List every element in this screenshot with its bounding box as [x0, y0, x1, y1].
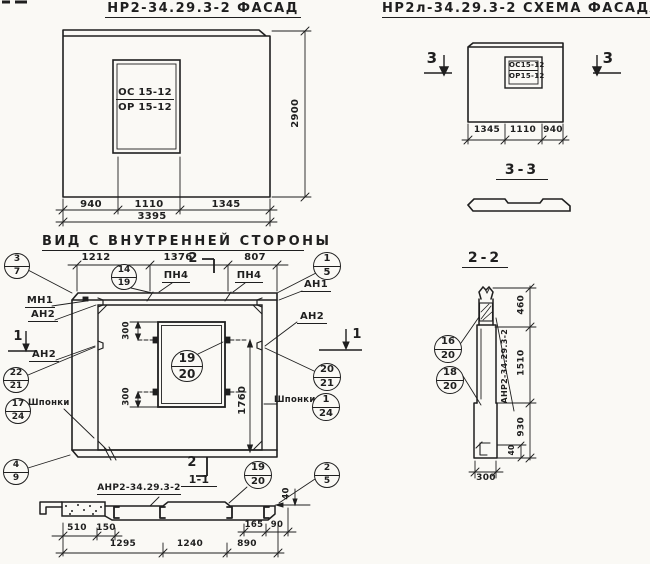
inner-dim-1760: 1760	[238, 383, 249, 417]
callout-3-7: 37	[4, 253, 30, 279]
callout-14-19-top: 14	[112, 265, 136, 278]
callout-18-20: 1820	[436, 366, 464, 394]
callout-16-20-bottom: 20	[435, 350, 461, 363]
inner-dim-807: 807	[237, 253, 273, 264]
callout-1-24-bottom: 24	[313, 408, 339, 421]
callout-19-20-section-top: 19	[245, 462, 271, 476]
sec11-dim-40: 40	[283, 483, 292, 503]
scheme-window-mark-bottom: ОР15-12	[509, 73, 538, 80]
callout-3-7-top: 3	[5, 254, 29, 267]
section3-mark-left: 3	[424, 51, 440, 67]
pn4-label-2: ПН4	[235, 271, 263, 283]
section-1-1-profile	[40, 502, 275, 520]
sec11-dim-1295: 1295	[105, 540, 141, 549]
an2-label-left-mid: АН2	[29, 350, 59, 362]
facade-left-panel	[63, 30, 270, 197]
callout-1-5-bottom: 5	[314, 267, 340, 280]
callout-1-5: 15	[313, 252, 341, 280]
shponki-label-left: Шпонки	[28, 399, 66, 408]
callout-2-5: 25	[314, 462, 340, 488]
facade-dim-1345: 1345	[208, 200, 244, 211]
scheme-dim-1345: 1345	[469, 126, 505, 135]
facade-scheme-title: НР2л-34.29.3-2 СХЕМА ФАСАДА	[382, 1, 650, 18]
section-3-3-profile	[468, 199, 570, 211]
inner-view-heading: ВИД С ВНУТРЕННЕЙ СТОРОНЫ	[42, 234, 304, 251]
callout-2-5-top: 2	[315, 463, 339, 476]
view-1-1-title: 1-1	[181, 474, 217, 487]
sec11-dim-90: 90	[263, 521, 291, 530]
sec11-dim-1240: 1240	[172, 540, 208, 549]
callout-17-24: 1724	[5, 398, 31, 424]
callout-20-21-bottom: 21	[314, 378, 340, 391]
callout-1-24-top: 1	[313, 394, 339, 408]
facade-window-mark-top: ОС 15-12	[116, 88, 174, 100]
callout-18-20-top: 18	[437, 367, 463, 381]
callout-19-20-window: 1920	[171, 350, 203, 382]
callout-20-21-top: 20	[314, 364, 340, 378]
callout-20-21: 2021	[313, 363, 341, 391]
callout-19-20-window-bottom: 20	[172, 367, 202, 382]
callout-2-5-bottom: 5	[315, 476, 339, 488]
callout-19-20-window-top: 19	[172, 351, 202, 367]
anr2-label-vertical: АНР2-34.29.3-2	[501, 327, 509, 405]
section1-cut-mark-right: 1	[350, 328, 364, 342]
callout-1-5-top: 1	[314, 253, 340, 267]
callout-4-9-top: 4	[4, 460, 28, 473]
facade-dim-940: 940	[73, 200, 109, 211]
inner-dim-1212: 1212	[78, 253, 114, 264]
section-2-2-title: 2-2	[462, 250, 508, 268]
facade-left-dimensions	[56, 27, 311, 226]
callout-4-9: 49	[3, 459, 29, 485]
sec11-dim-510: 510	[60, 524, 94, 533]
callout-18-20-bottom: 20	[437, 381, 463, 394]
an2-label-left-top: АН2	[28, 310, 58, 322]
callout-19-20-section: 1920	[244, 461, 272, 489]
callout-16-20: 1620	[434, 335, 462, 363]
callout-3-7-bottom: 7	[5, 267, 29, 279]
callout-17-24-bottom: 24	[6, 412, 30, 424]
callout-19-20-section-bottom: 20	[245, 476, 271, 489]
mn1-label: МН1	[25, 296, 55, 308]
callout-17-24-top: 17	[6, 399, 30, 412]
facade-dim-2900: 2900	[291, 93, 302, 133]
sec22-dim-300: 300	[472, 474, 500, 483]
callout-14-19: 1419	[111, 264, 137, 290]
drawing-sheet: НР2-34.29.3-2 ФАСАД НР2л-34.29.3-2 СХЕМА…	[0, 0, 650, 564]
sec11-dim-890: 890	[229, 540, 265, 549]
sec22-dim-1510: 1510	[517, 347, 526, 379]
window-dim-300-top: 300	[123, 316, 132, 344]
callout-1-24: 124	[312, 393, 340, 421]
callout-22-21-bottom: 21	[4, 381, 28, 393]
sec22-dim-460: 460	[517, 291, 526, 319]
section3-mark-right: 3	[600, 51, 616, 67]
callout-4-9-bottom: 9	[4, 473, 28, 485]
facade-dim-3395: 3395	[134, 212, 170, 223]
section2-cut-mark-top: 2	[186, 252, 200, 266]
scheme-dim-940: 940	[540, 126, 566, 135]
pn4-label-1: ПН4	[162, 271, 190, 283]
an1-label: АН1	[301, 280, 331, 292]
facade-window-mark-bottom: ОР 15-12	[116, 103, 174, 114]
callout-22-21: 2221	[3, 367, 29, 393]
callout-22-21-top: 22	[4, 368, 28, 381]
window-dim-300-bottom: 300	[123, 382, 132, 410]
facade-title: НР2-34.29.3-2 ФАСАД	[105, 1, 301, 18]
callout-16-20-top: 16	[435, 336, 461, 350]
section2-cut-mark-bottom: 2	[185, 456, 199, 470]
sec11-dim-150: 150	[92, 524, 120, 533]
section-2-2-profile	[474, 287, 497, 458]
section-3-3-title: 3-3	[496, 162, 548, 180]
facade-scheme-panel	[468, 43, 563, 122]
an2-label-right: АН2	[297, 312, 327, 324]
callout-14-19-bottom: 19	[112, 278, 136, 290]
section1-cut-mark-left: 1	[11, 330, 25, 344]
scheme-dim-1110: 1110	[506, 126, 540, 135]
shponki-label-right: Шпонки	[274, 396, 312, 405]
anr2-label-bottom: АНР2-34.29.3-2	[97, 484, 181, 495]
facade-dim-1110: 1110	[131, 200, 167, 211]
sec22-dim-930: 930	[517, 413, 526, 441]
sec22-dim-40: 40	[508, 441, 516, 459]
scheme-window-mark-top: ОС15-12	[509, 62, 538, 71]
